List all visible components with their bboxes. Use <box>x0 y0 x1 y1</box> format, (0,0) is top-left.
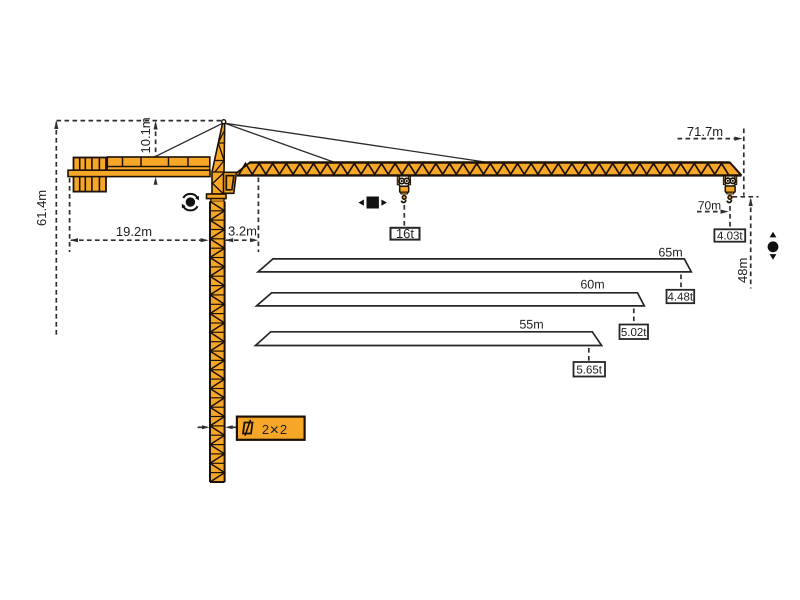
svg-text:65m: 65m <box>658 246 682 260</box>
svg-text:2: 2 <box>262 422 269 437</box>
svg-text:16t: 16t <box>396 226 414 241</box>
svg-text:10.1m: 10.1m <box>138 117 153 153</box>
svg-text:4.03t: 4.03t <box>717 230 743 242</box>
svg-text:4.48t: 4.48t <box>668 291 694 303</box>
svg-text:55m: 55m <box>519 318 543 332</box>
svg-text:5.65t: 5.65t <box>576 364 602 376</box>
svg-text:61.4m: 61.4m <box>34 190 49 226</box>
svg-text:2: 2 <box>280 422 287 437</box>
svg-text:70m: 70m <box>698 199 721 213</box>
svg-text:3.2m: 3.2m <box>228 224 257 239</box>
svg-text:48m: 48m <box>735 258 750 283</box>
svg-text:60m: 60m <box>580 278 604 292</box>
svg-text:19.2m: 19.2m <box>116 224 152 239</box>
svg-text:×: × <box>270 422 279 439</box>
svg-text:71.7m: 71.7m <box>687 124 723 139</box>
svg-text:5.02t: 5.02t <box>621 327 647 339</box>
